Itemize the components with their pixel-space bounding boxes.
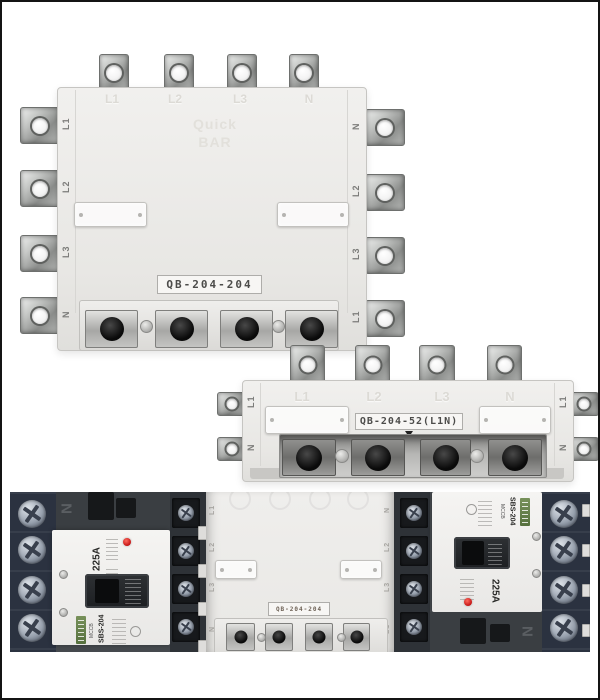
terminal-lug — [365, 300, 405, 337]
lug-hole — [377, 311, 393, 327]
barrier-tab — [582, 504, 590, 517]
clip-rivet — [138, 213, 142, 217]
terminal-lug — [20, 170, 60, 207]
clip-rivet — [282, 213, 286, 217]
screw-terminal — [285, 310, 338, 348]
clear-clip — [479, 406, 551, 434]
terminal-screw — [100, 317, 124, 341]
phillips-screw — [550, 614, 578, 642]
terminal-label: N — [291, 92, 327, 106]
main-adapter-photo: L1 L2 L3 N Quick BAR L1 L2 L3 N N L2 L3 … — [20, 54, 403, 349]
lug-hole — [32, 308, 48, 324]
terminal-screw — [433, 445, 459, 471]
type-label: MCCB — [88, 618, 96, 644]
screw-terminal — [282, 439, 336, 476]
terminal-label: L2 — [60, 171, 72, 203]
brand-tag — [76, 616, 86, 644]
molded-block — [460, 618, 486, 644]
cert-mark — [130, 626, 141, 637]
rating-label: 225A — [488, 574, 502, 608]
breaker-face-panel: SBS-204 MCCB 225A — [432, 492, 542, 612]
terminal-label: N — [350, 110, 362, 142]
breaker-handle — [454, 537, 510, 569]
molded-block — [490, 624, 510, 642]
terminal-screw — [234, 631, 247, 644]
clear-clip — [340, 560, 382, 579]
embossed-roundel — [347, 492, 369, 510]
lug-hole — [300, 358, 315, 373]
terminal-lug — [20, 297, 60, 334]
terminal-label: L1 — [282, 389, 322, 404]
model-label: SBS-204 — [506, 496, 518, 526]
phillips-screw — [406, 581, 422, 597]
pole-marking-n: N — [520, 618, 534, 644]
molded-block — [116, 498, 136, 518]
lug-hole — [377, 120, 393, 136]
clear-clip — [265, 406, 349, 434]
brand-logo-line2: BAR — [170, 134, 260, 152]
phillips-screw — [550, 500, 578, 528]
lug-hole — [377, 185, 393, 201]
fine-print — [460, 578, 474, 600]
phillips-screw — [550, 536, 578, 564]
phillips-screw — [18, 500, 46, 528]
handle-knob — [95, 579, 119, 603]
clip-rivet — [484, 418, 488, 422]
clip-rivet — [270, 418, 274, 422]
screw-terminal — [343, 623, 370, 651]
clear-clip — [215, 560, 257, 579]
guide-dot — [337, 633, 346, 642]
terminal-lug — [365, 109, 405, 146]
terminal-lug — [365, 237, 405, 274]
strip-adapter-photo: L1 L2 L3 N L1 N L1 N QB-204-52(L1N) — [217, 345, 597, 480]
terminal-screw — [300, 317, 324, 341]
model-label-plate: QB-204-52(L1N) — [355, 413, 463, 430]
panel-screw — [59, 608, 68, 617]
phillips-screw — [178, 543, 194, 559]
lug-hole — [497, 358, 512, 373]
terminal-lug — [487, 345, 522, 385]
terminal-label: N — [383, 498, 392, 522]
terminal-label: L3 — [422, 389, 462, 404]
terminal-screw — [273, 631, 286, 644]
guide-dot — [470, 449, 484, 463]
terminal-row — [279, 434, 547, 478]
clear-clip — [277, 202, 349, 227]
phillips-screw — [178, 581, 194, 597]
terminal-label: L2 — [354, 389, 394, 404]
panel-screw — [532, 569, 541, 578]
phillips-screw — [406, 543, 422, 559]
clip-rivet — [79, 213, 83, 217]
terminal-label: L1 — [558, 389, 568, 415]
panel-screw — [532, 532, 541, 541]
terminal-label: L3 — [383, 575, 392, 599]
lug-hole — [296, 65, 312, 81]
clip-rivet — [340, 213, 344, 217]
barrier-tab — [582, 544, 590, 557]
body-seam — [554, 383, 555, 466]
handle-tag — [125, 578, 141, 604]
lug-hole — [106, 65, 122, 81]
terminal-label: N — [558, 434, 568, 460]
terminal-lug — [20, 235, 60, 272]
terminal-screw — [235, 317, 259, 341]
screw-terminal — [488, 439, 542, 476]
clear-clip — [74, 202, 147, 227]
guide-dot — [140, 320, 153, 333]
clip-rivet — [345, 568, 349, 572]
clip-rivet — [542, 418, 546, 422]
molded-block — [88, 492, 114, 520]
lug-hole — [579, 444, 590, 455]
screw-terminal — [85, 310, 138, 348]
terminal-label: L2 — [350, 175, 362, 207]
trip-indicator — [123, 538, 131, 546]
lug-hole — [377, 248, 393, 264]
screw-terminal — [265, 623, 293, 651]
lug-hole — [32, 181, 48, 197]
breaker-face-panel: 225A MCCB SBS-204 — [52, 530, 170, 645]
panel-screw — [59, 570, 68, 579]
terminal-label: N — [246, 434, 256, 460]
phillips-screw — [178, 619, 194, 635]
terminal-block — [542, 492, 590, 652]
right-breaker: SBS-204 MCCB 225A N — [394, 492, 590, 652]
screw-terminal — [305, 623, 333, 651]
terminal-label: N — [490, 389, 530, 404]
lug-hole — [579, 399, 590, 410]
terminal-label: N — [60, 298, 72, 330]
screw-terminal — [226, 623, 255, 651]
terminal-label: L1 — [246, 389, 256, 415]
installation-photo: N 225A MCCB SBS-204 — [10, 492, 590, 652]
left-breaker: N 225A MCCB SBS-204 — [10, 492, 206, 652]
clip-rivet — [220, 568, 224, 572]
terminal-label: L1 — [208, 498, 217, 522]
phillips-screw — [18, 614, 46, 642]
terminal-label: L3 — [350, 238, 362, 270]
terminal-label: L2 — [157, 92, 193, 106]
barrier-tab — [582, 624, 590, 637]
terminal-block — [10, 492, 56, 652]
brand-tag-text-lines — [522, 501, 528, 523]
phillips-screw — [406, 619, 422, 635]
embossed-roundel — [229, 492, 251, 510]
embossed-roundel — [309, 492, 331, 510]
terminal-label: L3 — [60, 236, 72, 268]
screw-terminal — [155, 310, 208, 348]
brand-tag — [520, 498, 530, 526]
terminal-label: L1 — [350, 301, 362, 333]
terminal-screw — [350, 631, 363, 644]
phillips-screw — [18, 576, 46, 604]
model-label-plate: QB-204-204 — [268, 602, 330, 616]
terminal-lug — [20, 107, 60, 144]
terminal-screw — [170, 317, 194, 341]
body-seam — [260, 383, 261, 466]
lug-hole — [171, 65, 187, 81]
lug-hole — [430, 358, 445, 373]
handle-tag — [488, 541, 502, 565]
screw-terminal — [420, 439, 471, 476]
brand-logo-line1: Quick — [170, 116, 260, 134]
brand-logo-embossed: Quick BAR — [170, 116, 260, 151]
terminal-screw — [313, 631, 326, 644]
terminal-lug — [290, 345, 325, 385]
screw-terminal — [220, 310, 273, 348]
clip-rivet — [340, 418, 344, 422]
guide-dot — [272, 320, 285, 333]
terminal-label: L2 — [208, 535, 217, 559]
brand-tag-text-lines — [78, 619, 84, 641]
fine-print — [112, 618, 126, 644]
phillips-screw — [178, 505, 194, 521]
product-collage: L1 L2 L3 N Quick BAR L1 L2 L3 N N L2 L3 … — [0, 0, 600, 700]
terminal-lug — [419, 345, 455, 385]
phillips-screw — [550, 576, 578, 604]
fine-print — [106, 538, 118, 560]
terminal-screw — [296, 445, 322, 471]
terminal-screw — [365, 445, 391, 471]
type-label: MCCB — [498, 498, 506, 524]
barrier-tab — [582, 584, 590, 597]
lug-hole — [226, 399, 237, 410]
terminal-column — [394, 492, 430, 652]
clip-rivet — [248, 568, 252, 572]
lug-hole — [365, 358, 380, 373]
handle-knob — [462, 541, 484, 565]
embossed-roundel — [269, 492, 291, 510]
lug-hole — [32, 118, 48, 134]
lug-hole — [226, 444, 237, 455]
terminal-label: L3 — [222, 92, 258, 106]
lug-hole — [32, 246, 48, 262]
terminal-label: L1 — [60, 108, 72, 140]
terminal-label: L2 — [383, 535, 392, 559]
terminal-screw — [502, 445, 528, 471]
screw-terminal — [351, 439, 405, 476]
terminal-lug — [365, 174, 405, 211]
terminal-label: L1 — [94, 92, 130, 106]
breaker-handle — [85, 574, 149, 608]
terminal-lug — [355, 345, 390, 385]
guide-dot — [335, 449, 349, 463]
lug-hole — [234, 65, 250, 81]
pole-marking-n: N — [60, 496, 74, 522]
model-label: SBS-204 — [96, 614, 108, 644]
guide-dot — [257, 633, 266, 642]
model-label-plate: QB-204-204 — [157, 275, 262, 294]
terminal-row — [214, 618, 388, 652]
clip-rivet — [373, 568, 377, 572]
trip-indicator — [464, 598, 472, 606]
phillips-screw — [18, 536, 46, 564]
fine-print — [478, 500, 492, 526]
terminal-row — [79, 300, 339, 351]
cert-mark — [466, 504, 477, 515]
installed-adapter: L1 L2 L3 N N L2 L3 L1 QB-204-204 — [206, 492, 394, 652]
phillips-screw — [406, 505, 422, 521]
